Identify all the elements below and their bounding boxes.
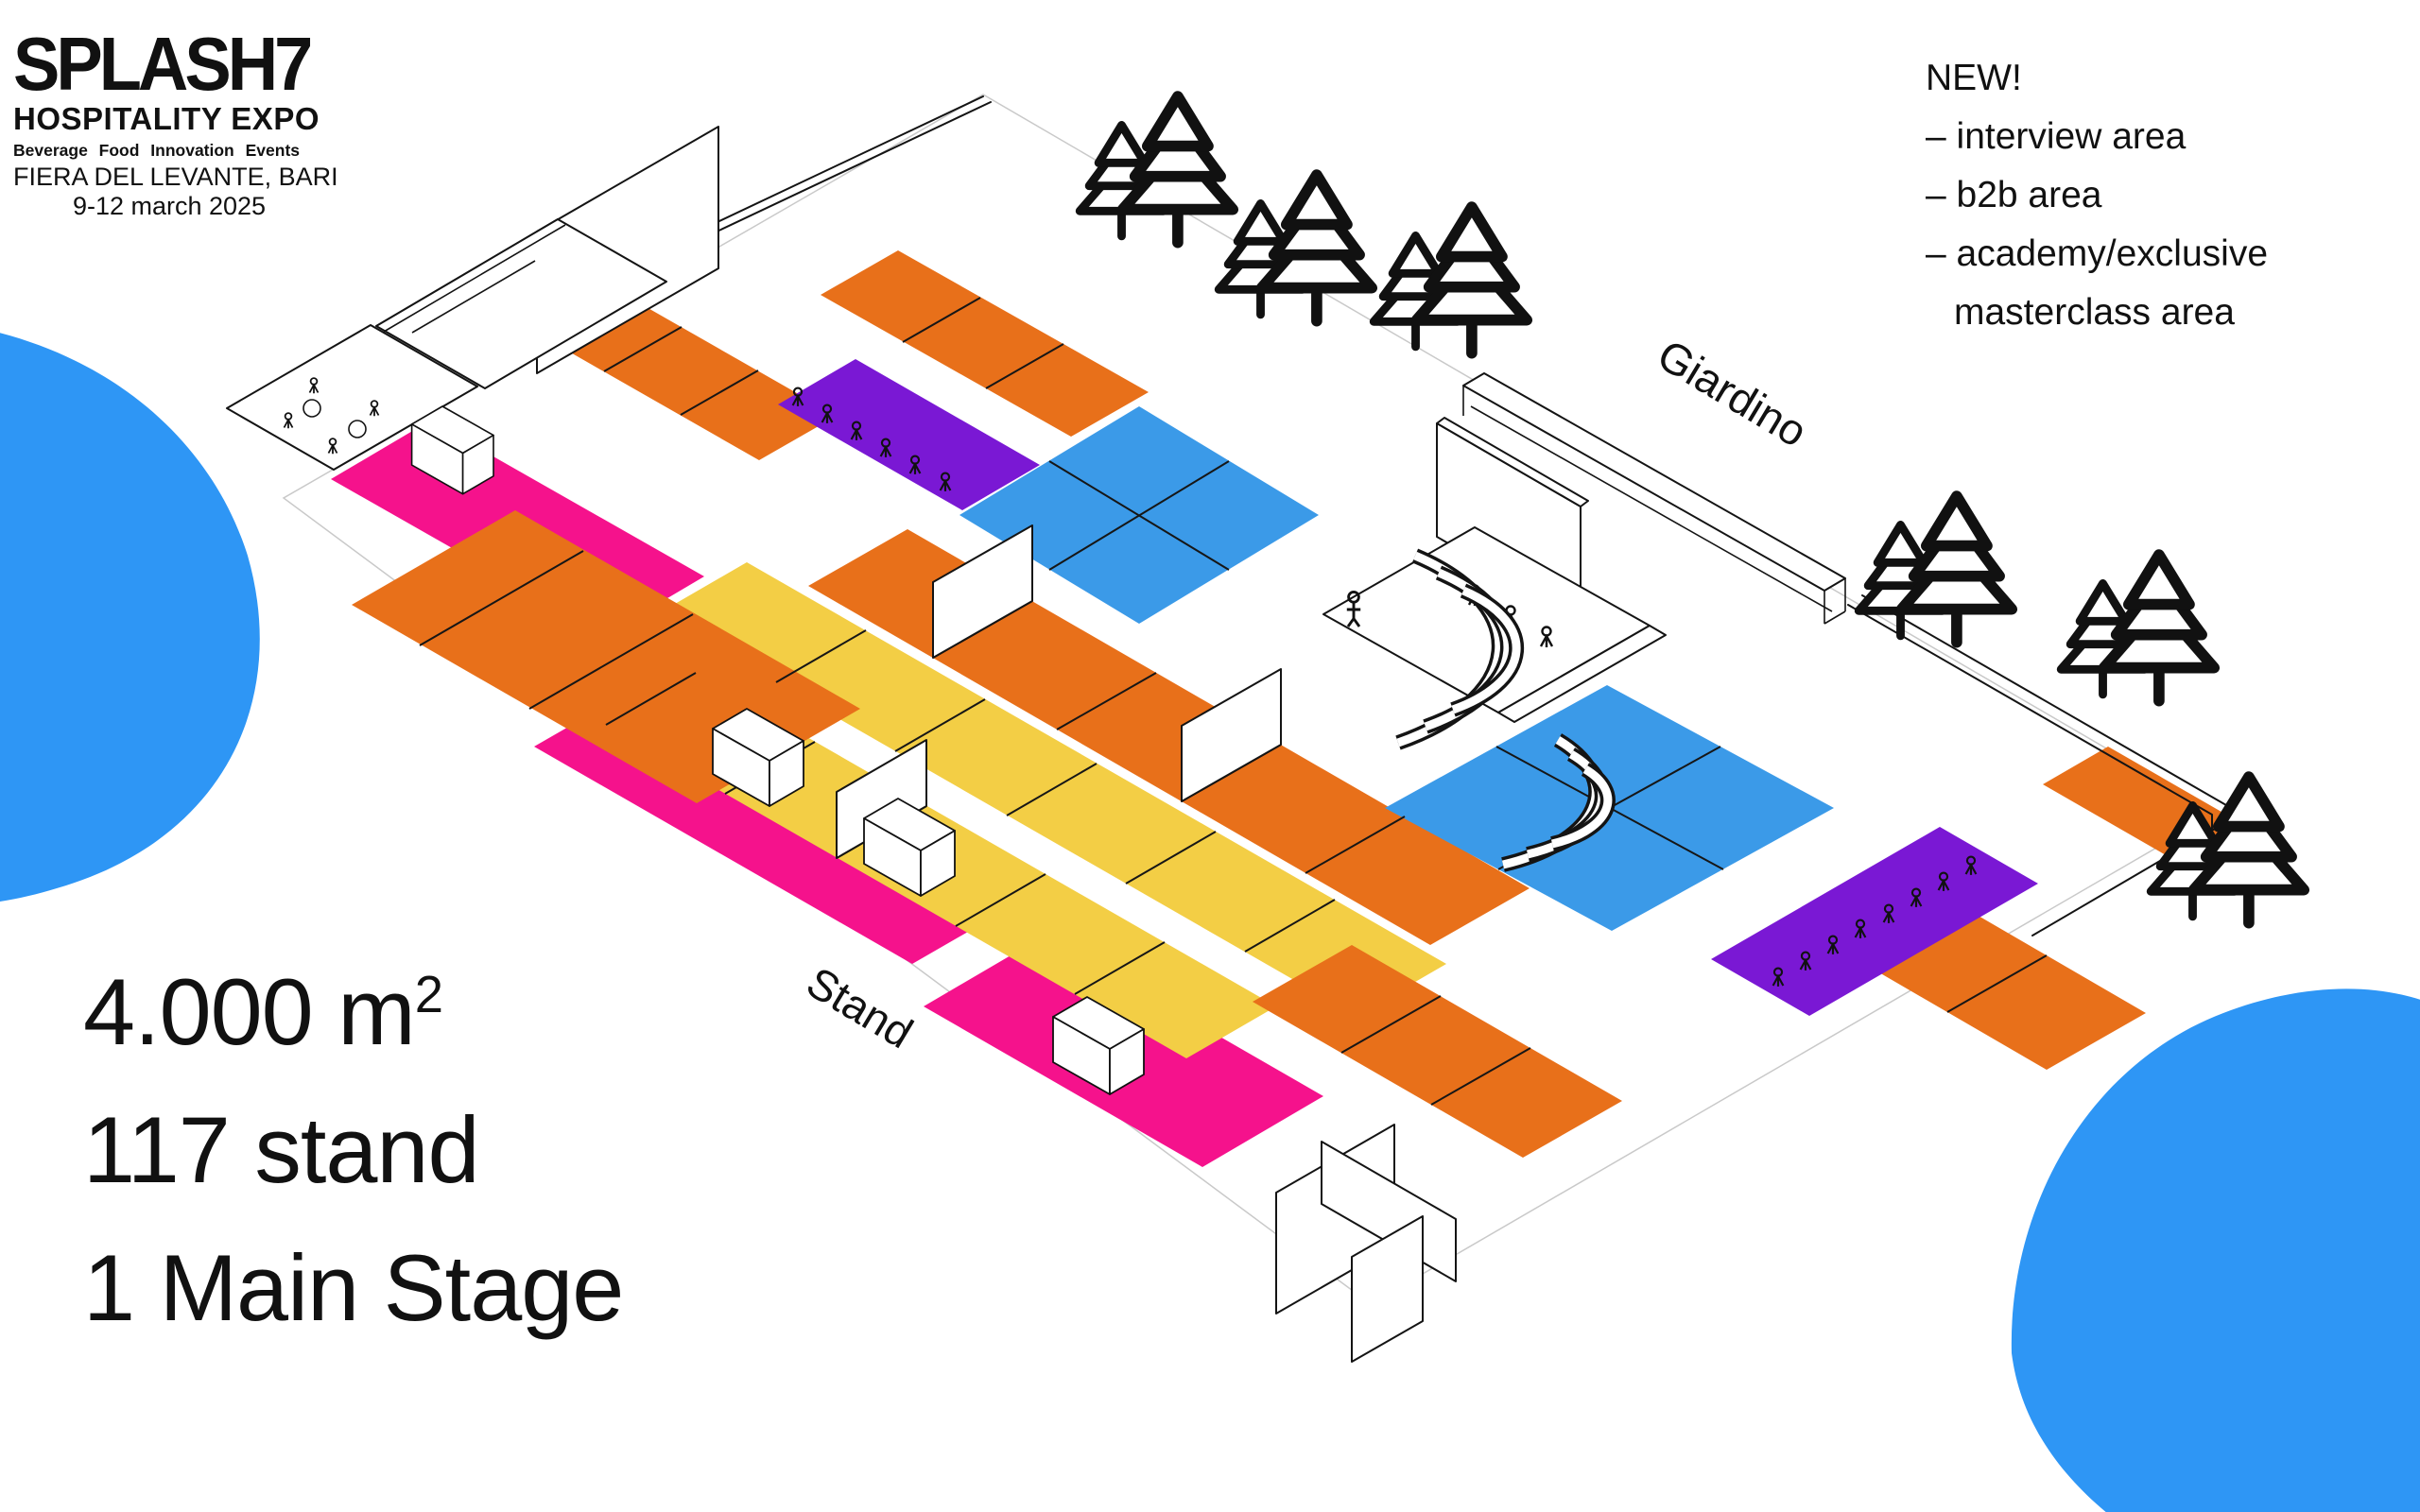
- new-features-list: – interview area – b2b area – academy/ex…: [1926, 108, 2417, 342]
- logo-block: SPLASH7 HOSPITALITY EXPO Beverage Food I…: [13, 25, 339, 221]
- stats-block: 4.000 m2 117 stand 1 Main Stage: [83, 926, 623, 1357]
- left-blob: [0, 318, 260, 907]
- logo-tagline: Beverage Food Innovation Events: [13, 138, 339, 163]
- stat-area-sup: 2: [415, 966, 442, 1023]
- new-feature-item: – b2b area: [1926, 166, 2417, 225]
- logo-title: SPLASH7: [13, 25, 339, 104]
- venue-text: FIERA DEL LEVANTE, BARI: [13, 163, 339, 192]
- stat-stands: 117 stand: [83, 1081, 623, 1219]
- poster-canvas: SPLASH7 HOSPITALITY EXPO Beverage Food I…: [0, 0, 2420, 1512]
- new-feature-item: – academy/exclusive masterclass area: [1926, 225, 2417, 342]
- stat-stage: 1 Main Stage: [83, 1219, 623, 1357]
- bottom-right-blob: [2012, 988, 2420, 1512]
- dates-text: 9-12 march 2025: [13, 192, 325, 221]
- new-feature-item: – interview area: [1926, 108, 2417, 166]
- new-heading: NEW!: [1926, 49, 2417, 108]
- stat-area: 4.000 m2: [83, 926, 623, 1081]
- new-features-block: NEW! – interview area – b2b area – acade…: [1926, 49, 2417, 342]
